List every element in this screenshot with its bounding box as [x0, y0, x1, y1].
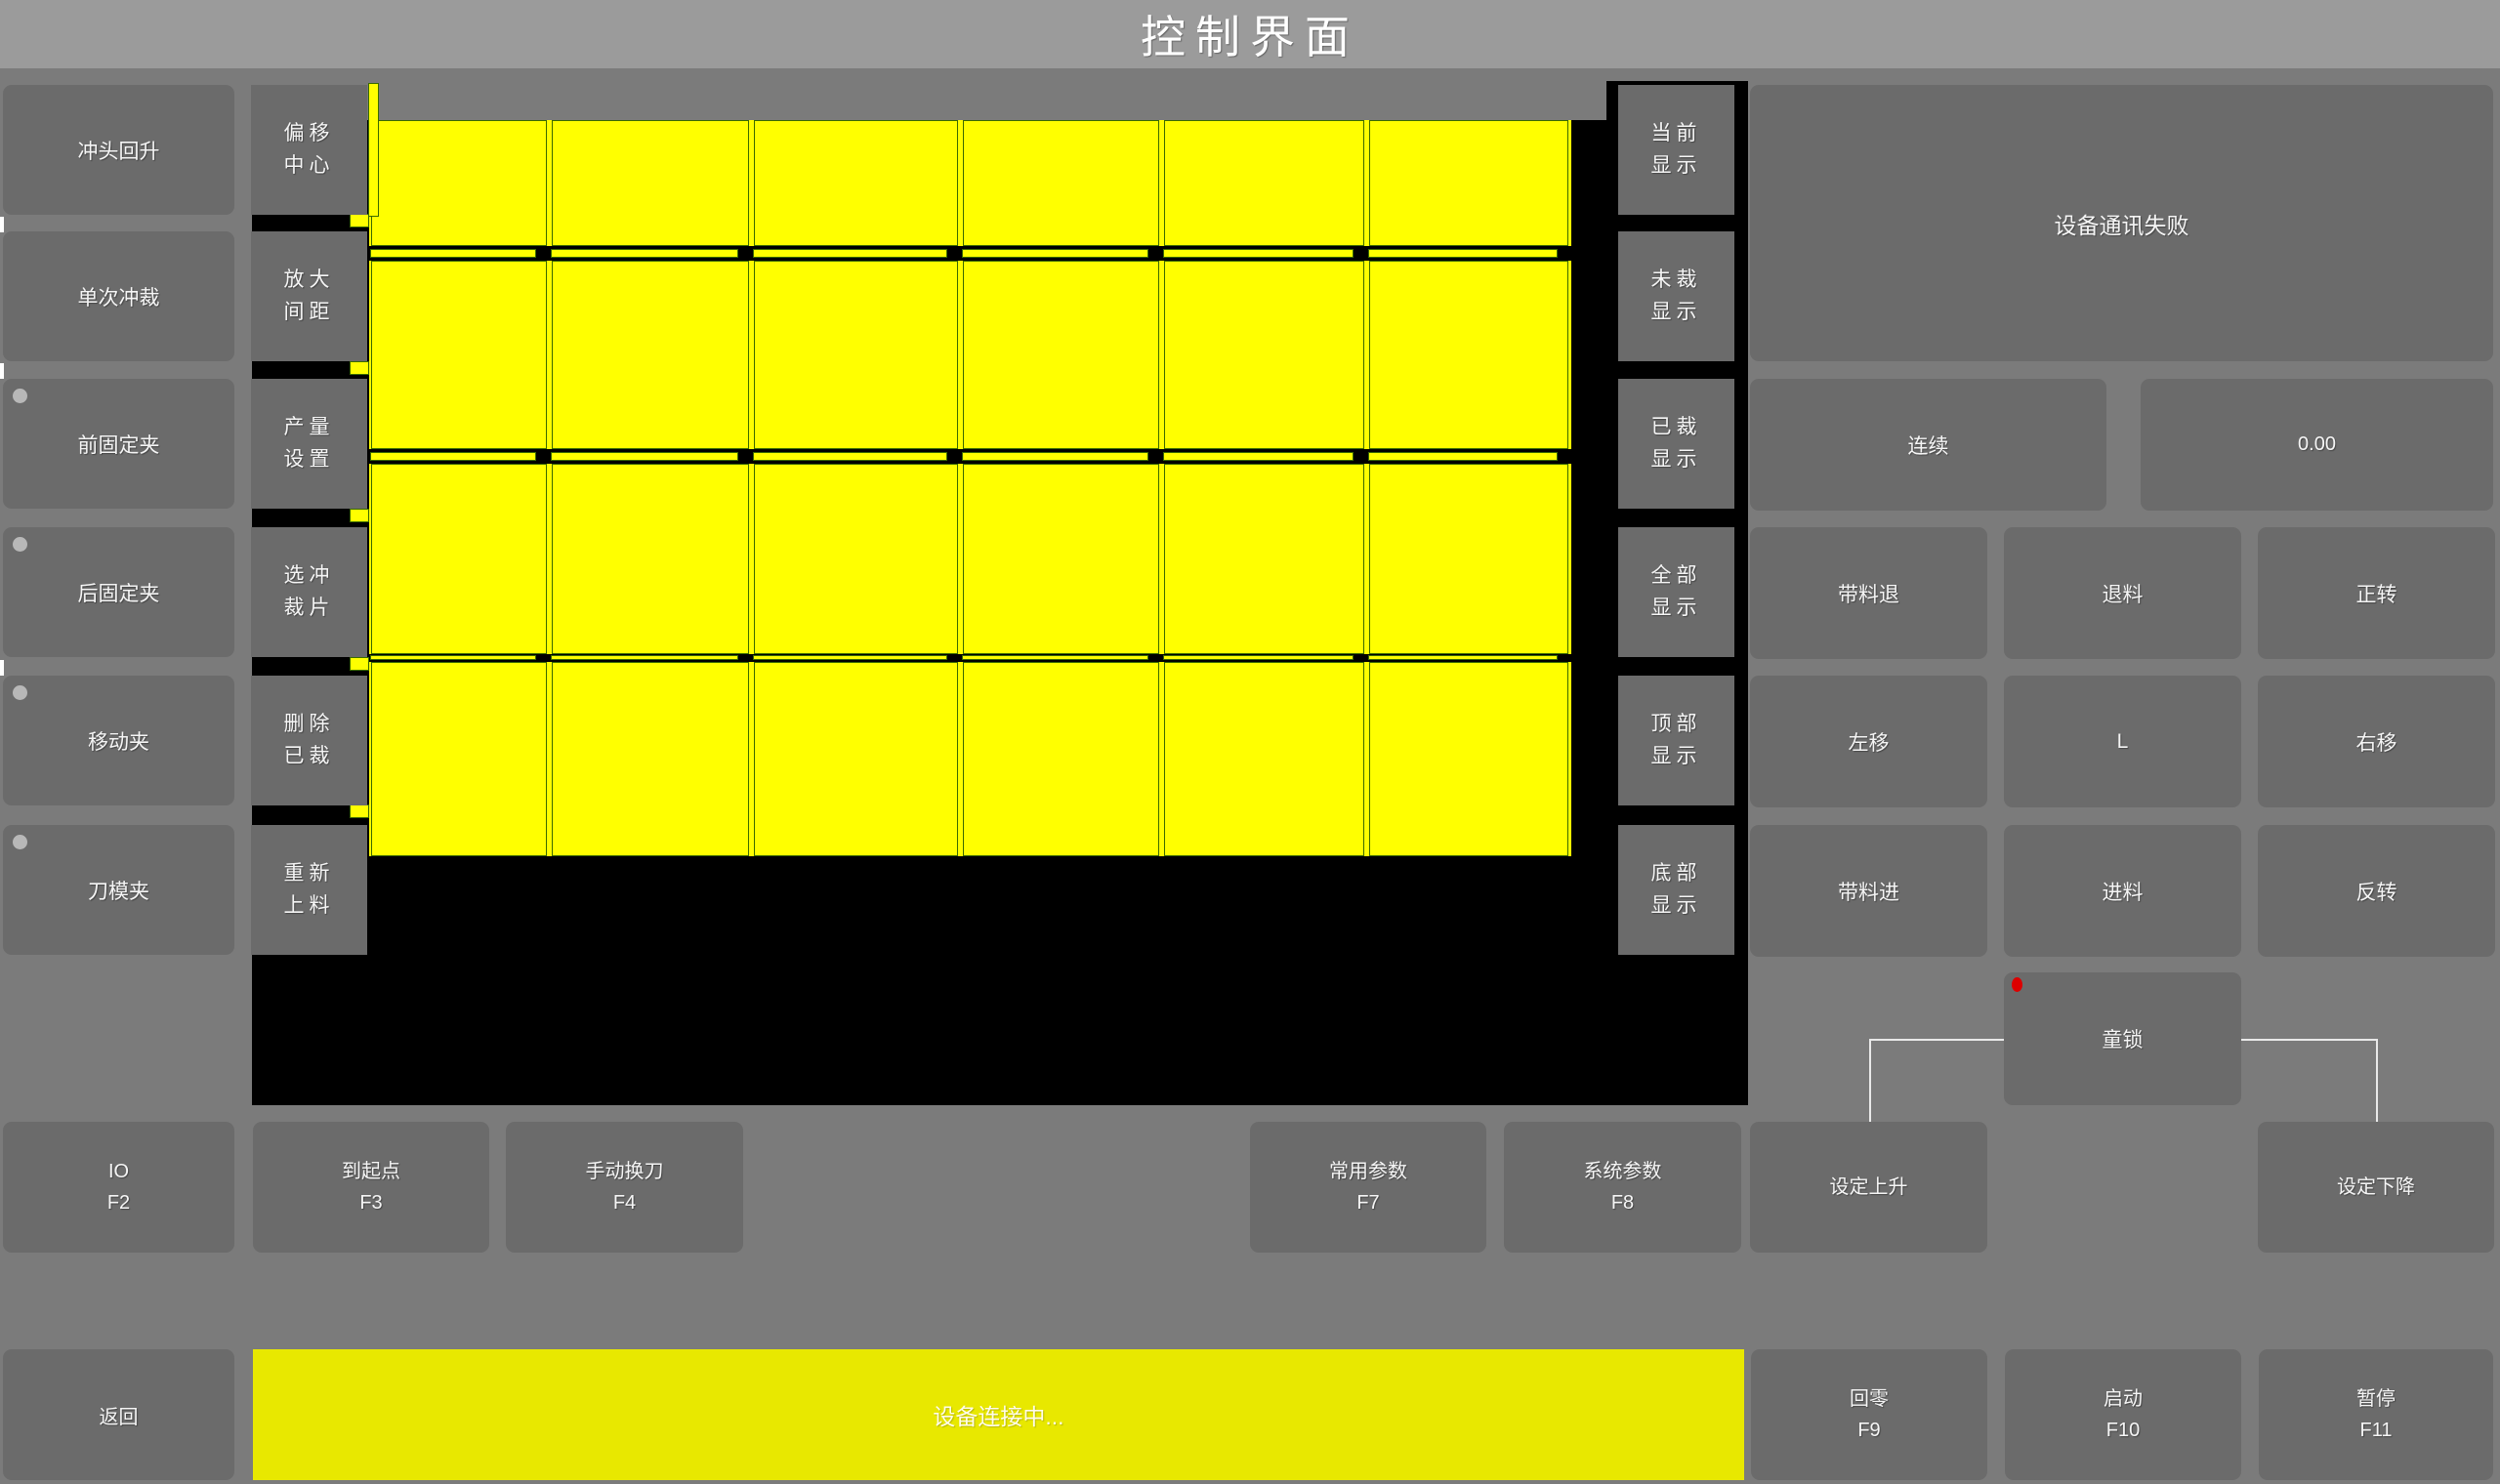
display-button-2[interactable]: 未裁 显示	[1618, 231, 1734, 361]
jog-button-进料[interactable]: 进料	[2004, 825, 2241, 957]
nest-left-tab	[350, 804, 369, 818]
nest-piece[interactable]	[754, 120, 958, 246]
bottom-fkey-F10[interactable]: 启动 F10	[2005, 1349, 2241, 1480]
device-status-message: 设备通讯失败	[2055, 207, 2189, 240]
clamp-state-dot	[13, 835, 27, 849]
bottom-fkey-F9[interactable]: 回零 F9	[1751, 1349, 1987, 1480]
tool-button-3[interactable]: 产量 设置	[251, 379, 367, 509]
nest-gap-strip	[370, 655, 536, 660]
nest-gap-strip	[962, 452, 1148, 461]
jog-button-右移[interactable]: 右移	[2258, 676, 2495, 807]
connection-status-text: 设备连接中...	[933, 1398, 1063, 1431]
function-button-F4[interactable]: 手动换刀 F4	[506, 1122, 743, 1253]
nest-gap-strip	[551, 655, 738, 660]
function-button-F8[interactable]: 系统参数 F8	[1504, 1122, 1741, 1253]
nest-piece[interactable]	[963, 261, 1159, 449]
canvas-top-band	[252, 81, 1606, 120]
clamp-state-dot	[13, 685, 27, 700]
function-button-设定下降[interactable]: 设定下降	[2258, 1122, 2494, 1253]
nest-piece[interactable]	[371, 464, 547, 654]
nest-gap-strip	[1163, 655, 1354, 660]
tool-button-1[interactable]: 偏移 中心	[251, 85, 367, 215]
tool-button-5[interactable]: 删除 已裁	[251, 676, 367, 805]
left-button-4[interactable]: 后固定夹	[3, 527, 234, 657]
jog-button-带料退[interactable]: 带料退	[1750, 527, 1987, 659]
connector-line-left-h	[1869, 1039, 2005, 1041]
nest-gap-strip	[1368, 249, 1558, 258]
nest-piece[interactable]	[754, 662, 958, 856]
nest-gap-strip	[370, 249, 536, 258]
display-button-6[interactable]: 底部 显示	[1618, 825, 1734, 955]
nest-left-tab	[350, 509, 369, 522]
nest-piece[interactable]	[552, 261, 749, 449]
tool-button-2[interactable]: 放大 间距	[251, 231, 367, 361]
nest-piece[interactable]	[1369, 662, 1568, 856]
display-button-3[interactable]: 已裁 显示	[1618, 379, 1734, 509]
value-display-button[interactable]: 0.00	[2141, 379, 2493, 511]
nest-piece[interactable]	[1164, 662, 1364, 856]
back-button[interactable]: 返回	[3, 1349, 234, 1480]
edge-tick-mark	[0, 363, 4, 379]
child-lock-button[interactable]: 童锁	[2004, 972, 2241, 1105]
left-button-3[interactable]: 前固定夹	[3, 379, 234, 509]
jog-button-L[interactable]: L	[2004, 676, 2241, 807]
clamp-state-dot	[13, 537, 27, 552]
page-title: 控制界面	[1141, 2, 1359, 66]
nest-piece[interactable]	[963, 662, 1159, 856]
left-button-5[interactable]: 移动夹	[3, 676, 234, 805]
nest-piece[interactable]	[963, 464, 1159, 654]
function-button-F7[interactable]: 常用参数 F7	[1250, 1122, 1486, 1253]
nest-piece[interactable]	[1369, 261, 1568, 449]
nest-gap-strip	[962, 249, 1148, 258]
nest-piece[interactable]	[754, 464, 958, 654]
jog-button-正转[interactable]: 正转	[2258, 527, 2495, 659]
nest-left-tab	[350, 214, 369, 227]
display-button-1[interactable]: 当前 显示	[1618, 85, 1734, 215]
nest-gap-strip	[370, 452, 536, 461]
nest-left-tab	[350, 361, 369, 375]
title-bar: 控制界面	[0, 0, 2500, 68]
bottom-fkey-F11[interactable]: 暂停 F11	[2259, 1349, 2493, 1480]
nest-piece[interactable]	[1164, 464, 1364, 654]
nest-top-strip	[368, 83, 379, 217]
nest-gap-strip	[753, 655, 947, 660]
edge-tick-mark	[0, 660, 4, 676]
nest-piece[interactable]	[1369, 120, 1568, 246]
nest-gap-strip	[1368, 452, 1558, 461]
function-button-设定上升[interactable]: 设定上升	[1750, 1122, 1987, 1253]
nest-piece[interactable]	[552, 464, 749, 654]
nest-piece[interactable]	[371, 662, 547, 856]
connection-status-bar: 设备连接中...	[253, 1349, 1744, 1480]
left-button-2[interactable]: 单次冲裁	[3, 231, 234, 361]
nest-piece[interactable]	[371, 261, 547, 449]
child-lock-label: 童锁	[2103, 1024, 2144, 1053]
nest-gap-strip	[1163, 249, 1354, 258]
nest-gap-strip	[753, 249, 947, 258]
display-button-5[interactable]: 顶部 显示	[1618, 676, 1734, 805]
tool-button-4[interactable]: 选冲 裁片	[251, 527, 367, 657]
jog-button-带料进[interactable]: 带料进	[1750, 825, 1987, 957]
connector-line-left-v	[1869, 1039, 1871, 1122]
nest-piece[interactable]	[371, 120, 547, 246]
function-button-F3[interactable]: 到起点 F3	[253, 1122, 489, 1253]
function-button-F2[interactable]: IO F2	[3, 1122, 234, 1253]
device-status-panel: 设备通讯失败	[1750, 85, 2493, 361]
nest-gap-strip	[753, 452, 947, 461]
nest-gap-strip	[551, 249, 738, 258]
jog-button-退料[interactable]: 退料	[2004, 527, 2241, 659]
nest-gap-strip	[1368, 655, 1558, 660]
connector-line-right-h	[2241, 1039, 2378, 1041]
display-button-4[interactable]: 全部 显示	[1618, 527, 1734, 657]
nest-gap-strip	[962, 655, 1148, 660]
nest-piece[interactable]	[1369, 464, 1568, 654]
nest-gap-strip	[1163, 452, 1354, 461]
left-button-6[interactable]: 刀模夹	[3, 825, 234, 955]
nest-piece[interactable]	[754, 261, 958, 449]
mode-continuous-button[interactable]: 连续	[1750, 379, 2106, 511]
connector-line-right-v	[2376, 1039, 2378, 1122]
nest-piece[interactable]	[1164, 120, 1364, 246]
tool-button-6[interactable]: 重新 上料	[251, 825, 367, 955]
nest-piece[interactable]	[1164, 261, 1364, 449]
jog-button-反转[interactable]: 反转	[2258, 825, 2495, 957]
nest-piece[interactable]	[963, 120, 1159, 246]
nest-piece[interactable]	[552, 662, 749, 856]
nest-piece[interactable]	[552, 120, 749, 246]
red-indicator-dot	[2012, 977, 2022, 992]
edge-tick-mark	[0, 217, 4, 232]
clamp-state-dot	[13, 389, 27, 403]
nest-gap-strip	[551, 452, 738, 461]
left-button-1[interactable]: 冲头回升	[3, 85, 234, 215]
jog-button-左移[interactable]: 左移	[1750, 676, 1987, 807]
nest-left-tab	[350, 657, 369, 671]
